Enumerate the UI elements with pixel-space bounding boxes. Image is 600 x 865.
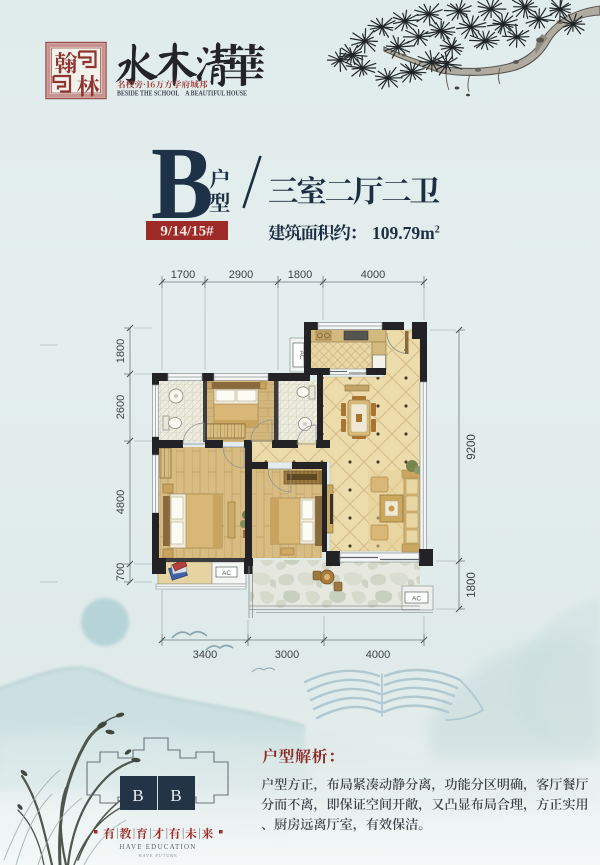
svg-text:9200: 9200 — [466, 434, 478, 460]
svg-text:2900: 2900 — [229, 269, 253, 281]
svg-text:9/14/15#: 9/14/15# — [160, 224, 214, 240]
svg-text:1700: 1700 — [171, 269, 195, 281]
svg-text:HAVE FUTURE: HAVE FUTURE — [138, 853, 177, 858]
svg-text:HAVE EDUCATION: HAVE EDUCATION — [119, 843, 196, 851]
svg-text:B: B — [170, 786, 181, 805]
svg-text:BESIDE THE SCHOOL A BEAUTIF: BESIDE THE SCHOOL A BEAUTIFUL HOUSE — [117, 89, 247, 98]
svg-text:1800: 1800 — [115, 339, 127, 363]
svg-text:2600: 2600 — [115, 395, 127, 419]
svg-text:AC: AC — [298, 350, 305, 359]
svg-text:1800: 1800 — [288, 269, 312, 281]
svg-text:B: B — [132, 786, 143, 805]
svg-text:109.79m2: 109.79m2 — [372, 223, 440, 243]
svg-text:1800: 1800 — [466, 572, 478, 598]
svg-text:700: 700 — [115, 563, 127, 581]
svg-text:4000: 4000 — [361, 269, 385, 281]
svg-text:AC: AC — [222, 570, 231, 577]
svg-text:4800: 4800 — [115, 490, 127, 514]
svg-text:3400: 3400 — [193, 649, 217, 661]
svg-text:AC: AC — [412, 596, 421, 603]
svg-text:4000: 4000 — [366, 649, 390, 661]
svg-text:3000: 3000 — [275, 649, 299, 661]
